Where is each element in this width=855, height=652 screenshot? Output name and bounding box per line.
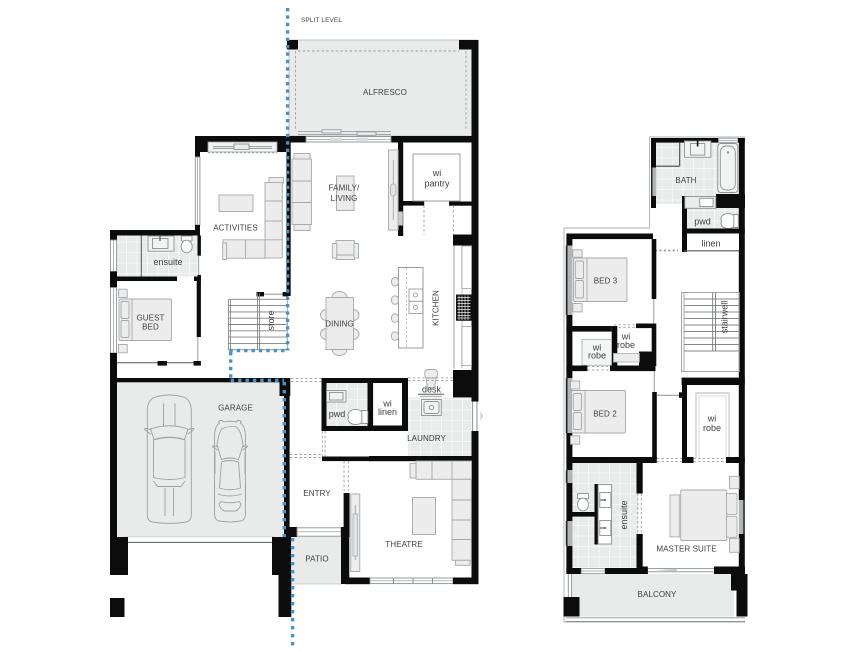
svg-text:robe: robe — [703, 423, 721, 433]
svg-text:MASTER SUITE: MASTER SUITE — [656, 545, 716, 554]
svg-text:DINING: DINING — [325, 320, 354, 329]
svg-text:BATH: BATH — [675, 176, 696, 185]
svg-text:desk: desk — [422, 385, 442, 395]
svg-text:KITCHEN: KITCHEN — [432, 290, 441, 326]
svg-text:ALFRESCO: ALFRESCO — [363, 88, 407, 97]
svg-text:ensuite: ensuite — [153, 257, 182, 267]
svg-text:GARAGE: GARAGE — [218, 404, 253, 413]
svg-text:wi: wi — [432, 168, 442, 178]
svg-text:THEATRE: THEATRE — [385, 540, 422, 549]
svg-text:ENTRY: ENTRY — [303, 489, 331, 498]
svg-text:GUEST: GUEST — [136, 314, 164, 323]
svg-text:LIVING: LIVING — [331, 194, 358, 203]
svg-text:SPLIT LEVEL: SPLIT LEVEL — [301, 17, 342, 24]
svg-text:ensuite: ensuite — [619, 500, 629, 529]
svg-text:linen: linen — [701, 239, 720, 249]
svg-text:pwd: pwd — [329, 409, 346, 419]
svg-text:robe: robe — [588, 351, 606, 361]
svg-text:PATIO: PATIO — [305, 555, 328, 564]
svg-text:pantry: pantry — [424, 179, 450, 189]
svg-text:BED 2: BED 2 — [593, 410, 617, 419]
svg-text:FAMILY/: FAMILY/ — [329, 184, 360, 193]
svg-text:BED 3: BED 3 — [594, 277, 618, 286]
svg-text:store: store — [266, 310, 276, 330]
svg-text:BED: BED — [142, 323, 159, 332]
svg-text:linen: linen — [378, 407, 397, 417]
svg-text:robe: robe — [617, 340, 635, 350]
svg-text:pwd: pwd — [694, 217, 711, 227]
svg-text:stairwell: stairwell — [720, 301, 730, 334]
svg-text:wi: wi — [707, 414, 717, 424]
svg-text:ACTIVITIES: ACTIVITIES — [213, 224, 258, 233]
svg-text:BALCONY: BALCONY — [638, 590, 677, 599]
svg-text:LAUNDRY: LAUNDRY — [407, 434, 446, 443]
